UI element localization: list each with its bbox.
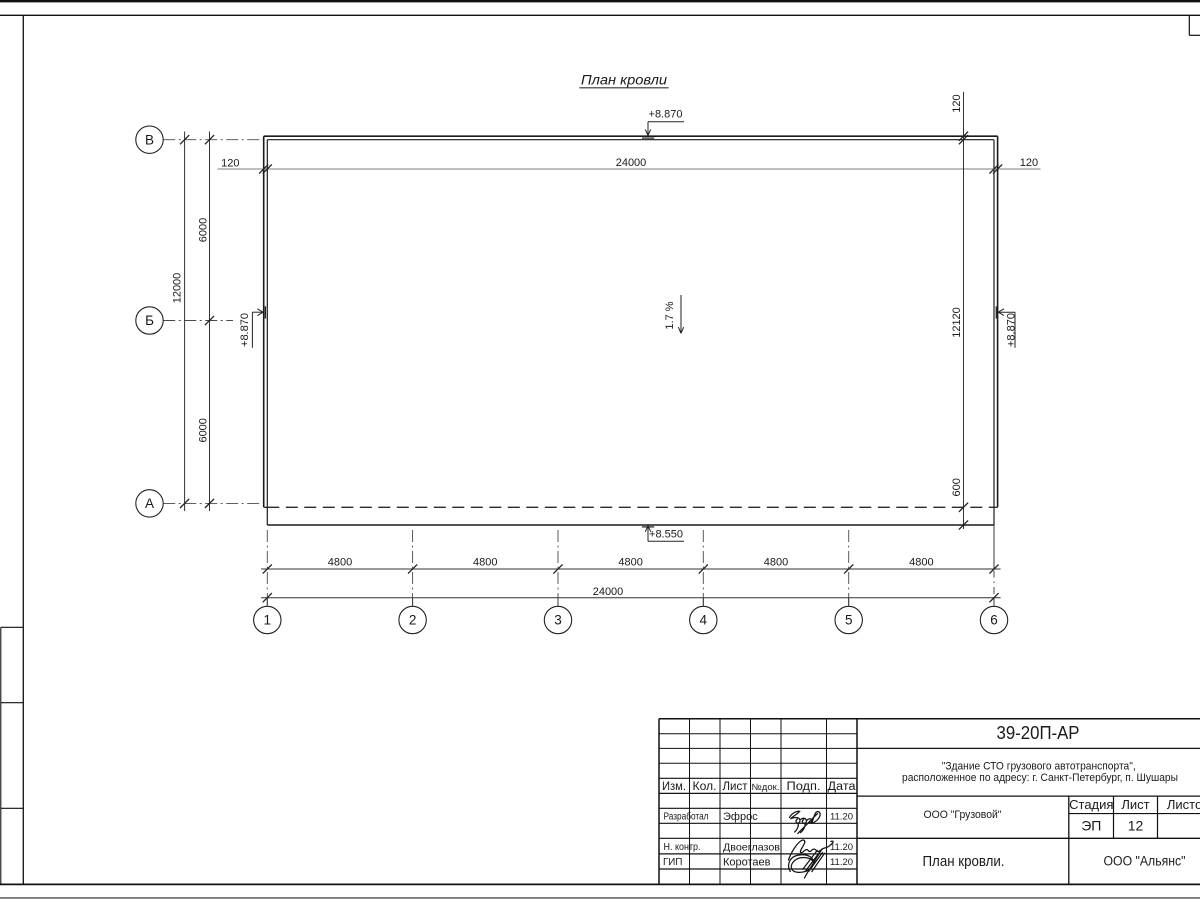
svg-text:11.20: 11.20 — [830, 857, 853, 868]
svg-text:1.7 %: 1.7 % — [664, 301, 676, 329]
svg-text:5: 5 — [845, 613, 853, 628]
svg-text:6: 6 — [990, 613, 998, 628]
svg-text:ООО "Грузовой": ООО "Грузовой" — [924, 809, 1002, 821]
svg-text:В: В — [145, 132, 154, 147]
svg-text:+8.870: +8.870 — [649, 109, 683, 121]
svg-text:1: 1 — [264, 613, 272, 628]
svg-text:Эфрос: Эфрос — [723, 811, 758, 823]
svg-text:План кровли: План кровли — [581, 73, 668, 88]
svg-text:Подп.: Подп. — [787, 781, 821, 793]
svg-text:+8.870: +8.870 — [239, 313, 251, 347]
svg-text:12120: 12120 — [951, 307, 963, 338]
svg-text:2: 2 — [409, 613, 417, 628]
svg-text:№док.: №док. — [752, 782, 780, 792]
svg-text:ООО "Альянс": ООО "Альянс" — [1104, 853, 1186, 868]
svg-text:12: 12 — [1128, 818, 1144, 834]
svg-text:24000: 24000 — [616, 157, 647, 169]
svg-text:6000: 6000 — [197, 418, 209, 442]
svg-text:А: А — [145, 496, 154, 511]
svg-text:120: 120 — [1020, 157, 1038, 169]
svg-text:Лист: Лист — [1121, 797, 1149, 812]
svg-text:120: 120 — [951, 94, 963, 112]
svg-text:6000: 6000 — [197, 218, 209, 242]
svg-text:4800: 4800 — [618, 557, 642, 569]
svg-text:Стадия: Стадия — [1069, 797, 1113, 812]
svg-text:39-20П-АР: 39-20П-АР — [997, 722, 1080, 743]
svg-text:Коротаев: Коротаев — [723, 856, 771, 868]
svg-text:4800: 4800 — [764, 557, 788, 569]
svg-text:600: 600 — [951, 478, 963, 496]
svg-text:24000: 24000 — [593, 586, 624, 598]
svg-text:4800: 4800 — [909, 557, 933, 569]
svg-text:расположенное по адресу: г. Са: расположенное по адресу: г. Санкт-Петерб… — [902, 772, 1178, 784]
svg-text:4800: 4800 — [328, 557, 352, 569]
svg-text:Н. контр.: Н. контр. — [664, 842, 701, 853]
svg-text:План кровли.: План кровли. — [923, 854, 1005, 870]
svg-text:Листов: Листов — [1167, 797, 1200, 812]
svg-text:3: 3 — [554, 613, 562, 628]
svg-text:Двоеглазов: Двоеглазов — [723, 841, 780, 853]
svg-text:Б: Б — [145, 313, 154, 328]
svg-text:12000: 12000 — [172, 273, 184, 304]
svg-text:"Здание СТО грузового автотран: "Здание СТО грузового автотранспорта", — [942, 760, 1136, 772]
svg-text:Лист: Лист — [723, 781, 749, 793]
svg-text:ГИП: ГИП — [663, 857, 682, 868]
svg-text:+8.870: +8.870 — [1006, 313, 1018, 347]
svg-text:11.20: 11.20 — [830, 842, 853, 853]
svg-text:Кол.: Кол. — [693, 781, 717, 793]
svg-text:Разработал: Разработал — [664, 811, 709, 822]
svg-text:11.20: 11.20 — [830, 812, 853, 823]
svg-text:4: 4 — [700, 613, 708, 628]
svg-text:4800: 4800 — [473, 557, 497, 569]
svg-text:120: 120 — [221, 157, 239, 169]
svg-text:Дата: Дата — [828, 781, 857, 793]
svg-text:+8.550: +8.550 — [649, 528, 683, 540]
svg-text:Изм.: Изм. — [662, 781, 686, 793]
svg-text:ЭП: ЭП — [1081, 818, 1101, 834]
